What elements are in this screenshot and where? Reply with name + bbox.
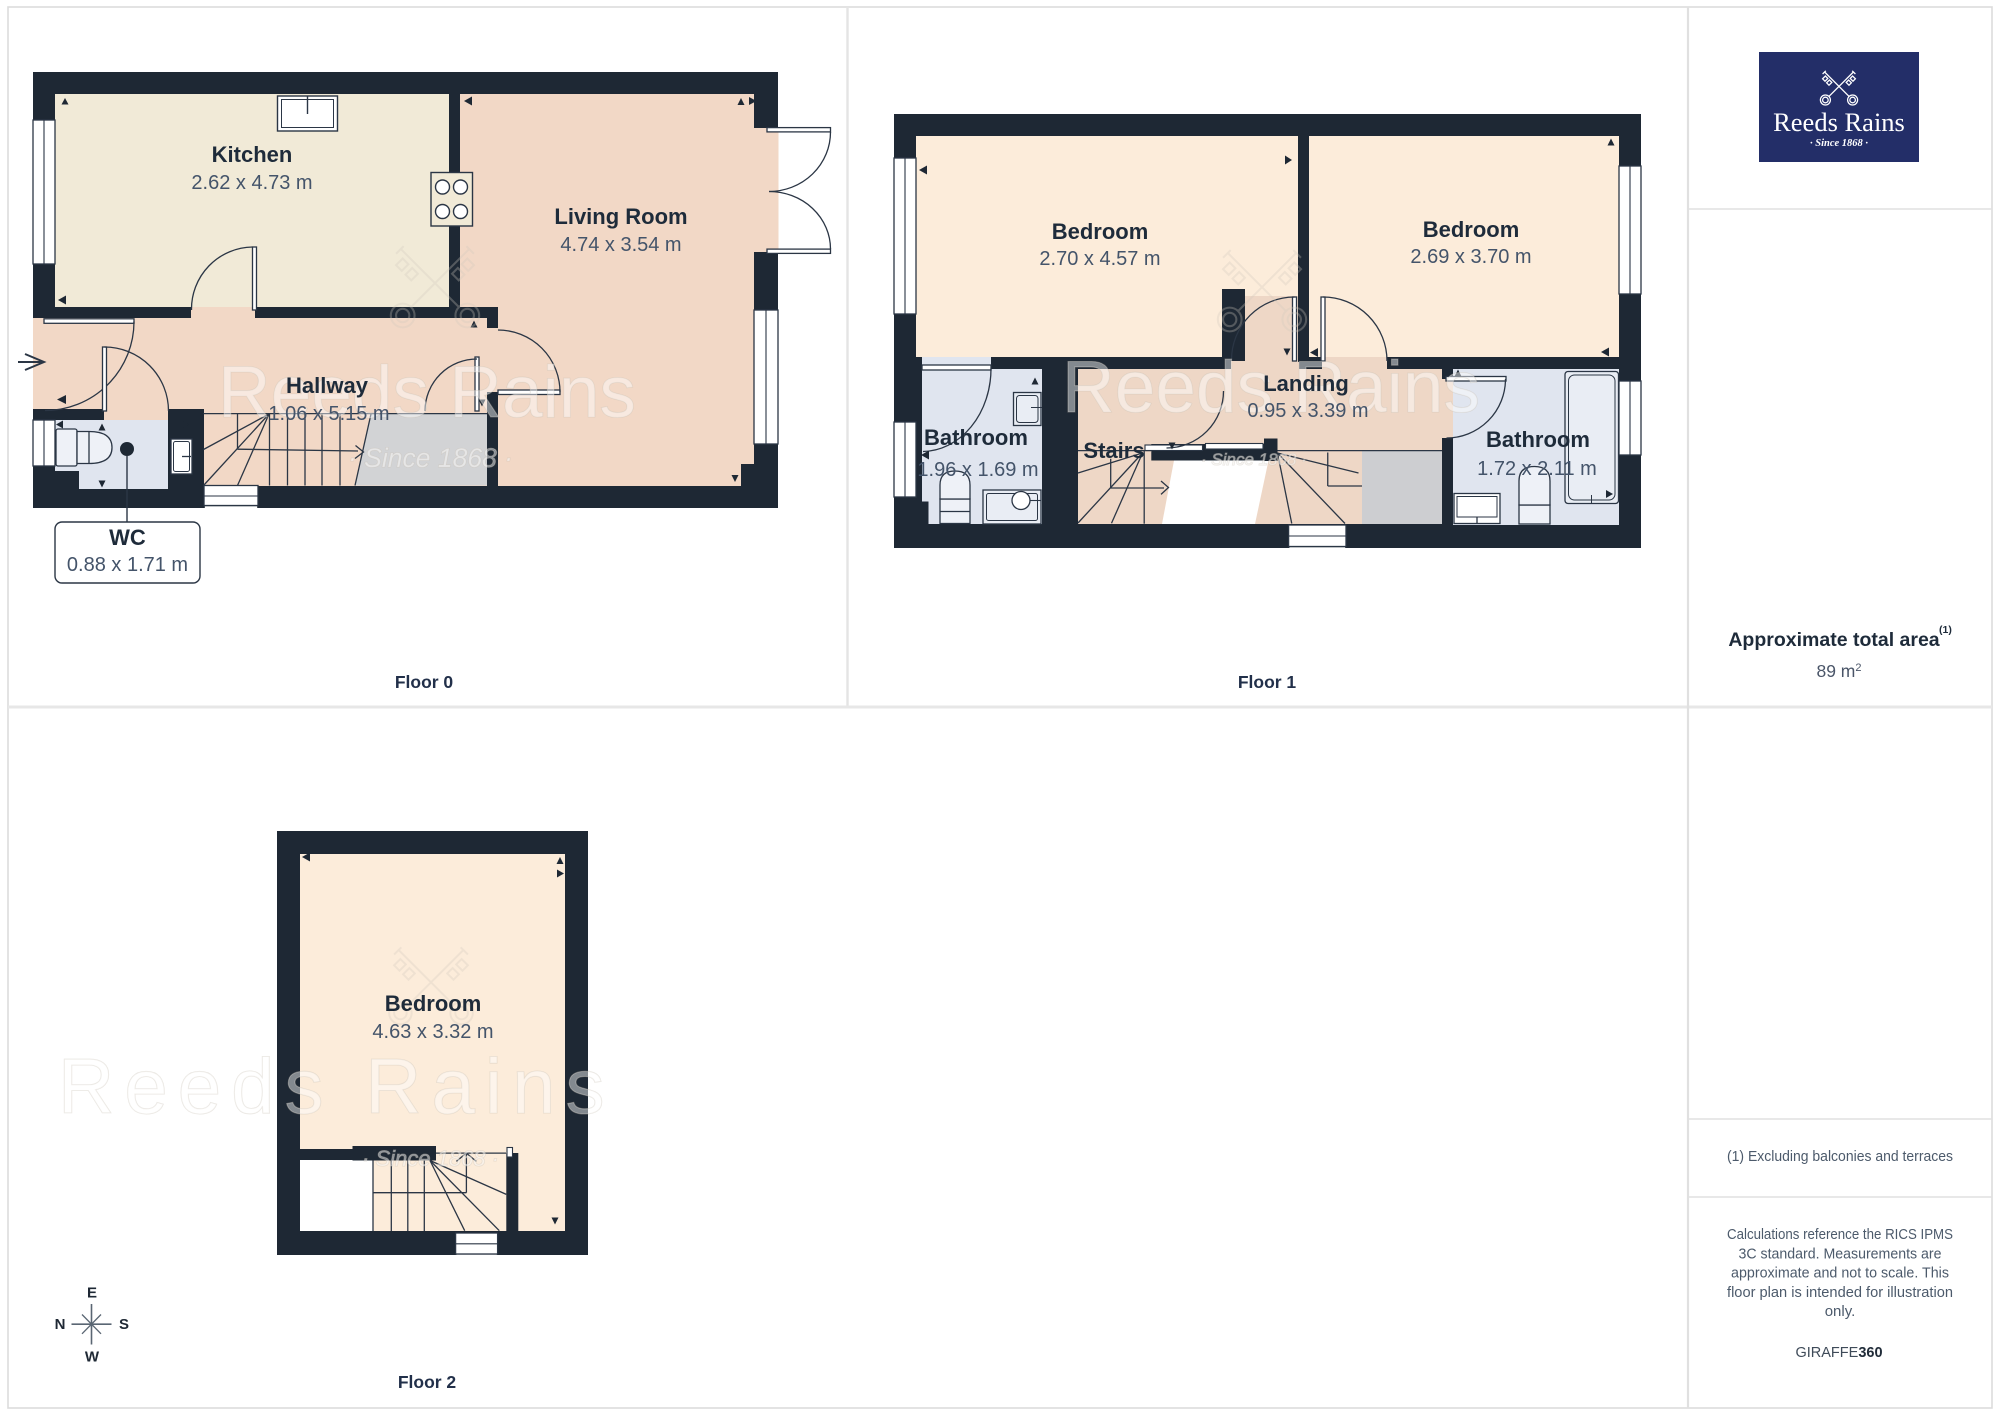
svg-text:only.: only. — [1825, 1303, 1856, 1320]
svg-text:(1) Excluding balconies and te: (1) Excluding balconies and terraces — [1727, 1148, 1953, 1165]
svg-text:N: N — [55, 1316, 66, 1333]
svg-text:· Since 1868 ·: · Since 1868 · — [1810, 137, 1868, 149]
svg-text:· Since 1868 ·: · Since 1868 · — [362, 1146, 499, 1171]
svg-text:Hallway: Hallway — [286, 373, 369, 398]
svg-text:Landing: Landing — [1263, 371, 1349, 396]
svg-text:4.74 x 3.54 m: 4.74 x 3.54 m — [560, 234, 681, 256]
svg-text:0.95 x 3.39 m: 0.95 x 3.39 m — [1247, 400, 1368, 422]
svg-text:1.72 x 2.11 m: 1.72 x 2.11 m — [1477, 458, 1597, 480]
svg-text:Floor 1: Floor 1 — [1238, 672, 1297, 692]
svg-text:· Since 1868 ·: · Since 1868 · — [1201, 450, 1307, 469]
svg-text:Reeds Rains: Reeds Rains — [58, 1042, 615, 1130]
svg-text:2.69 x 3.70 m: 2.69 x 3.70 m — [1410, 246, 1531, 268]
svg-text:(1): (1) — [1939, 624, 1952, 636]
svg-text:Reeds Rains: Reeds Rains — [1773, 107, 1905, 137]
svg-text:1.06 x 5.15 m: 1.06 x 5.15 m — [268, 403, 389, 425]
svg-text:Stairs: Stairs — [1083, 438, 1144, 463]
svg-text:S: S — [119, 1316, 129, 1333]
svg-text:floor plan is intended for ill: floor plan is intended for illustration — [1727, 1284, 1953, 1301]
svg-text:Bedroom: Bedroom — [1052, 219, 1149, 244]
svg-text:Calculations reference the RIC: Calculations reference the RICS IPMS — [1727, 1226, 1953, 1243]
svg-text:W: W — [85, 1349, 100, 1366]
svg-text:WC: WC — [109, 525, 146, 550]
svg-text:4.63 x 3.32 m: 4.63 x 3.32 m — [372, 1021, 493, 1043]
svg-text:Floor 2: Floor 2 — [398, 1372, 457, 1392]
svg-text:1.96 x 1.69 m: 1.96 x 1.69 m — [917, 459, 1038, 481]
svg-text:Bathroom: Bathroom — [1486, 427, 1590, 452]
svg-text:Floor 0: Floor 0 — [395, 672, 454, 692]
svg-text:Living Room: Living Room — [554, 204, 687, 229]
svg-text:89 m2: 89 m2 — [1816, 661, 1861, 681]
svg-text:2.62 x 4.73 m: 2.62 x 4.73 m — [191, 172, 312, 194]
svg-text:0.88 x 1.71 m: 0.88 x 1.71 m — [67, 554, 188, 576]
svg-text:Bedroom: Bedroom — [385, 991, 482, 1016]
svg-text:· Since 1868 ·: · Since 1868 · — [348, 443, 513, 473]
svg-text:2.70 x 4.57 m: 2.70 x 4.57 m — [1039, 248, 1160, 270]
svg-text:Approximate total area: Approximate total area — [1728, 629, 1939, 651]
svg-text:Bedroom: Bedroom — [1423, 217, 1520, 242]
svg-text:Kitchen: Kitchen — [212, 142, 293, 167]
svg-text:E: E — [87, 1285, 97, 1302]
svg-text:Bathroom: Bathroom — [924, 425, 1028, 450]
svg-text:3C standard. Measurements are: 3C standard. Measurements are — [1739, 1246, 1942, 1263]
svg-text:GIRAFFE360: GIRAFFE360 — [1795, 1345, 1882, 1361]
svg-text:approximate and not to scale.: approximate and not to scale. This — [1731, 1265, 1949, 1282]
